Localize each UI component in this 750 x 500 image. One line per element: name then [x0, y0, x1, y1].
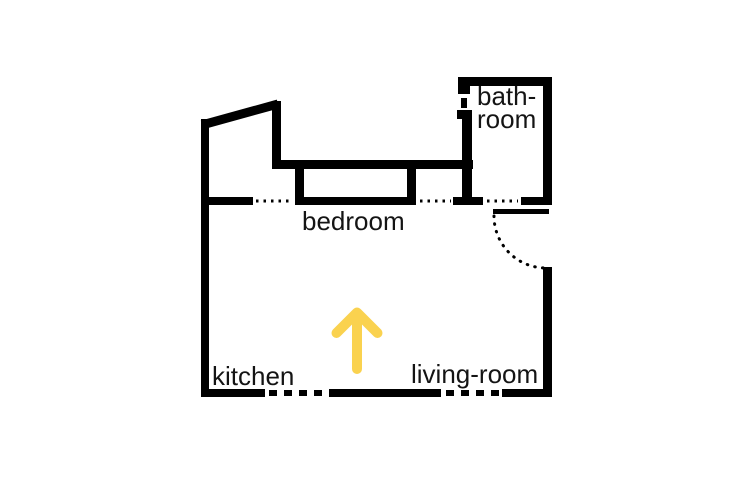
entry-door-leaf: [493, 209, 549, 214]
wall-top-angled-right-side: [272, 101, 281, 167]
floor-plan-canvas: [0, 0, 750, 500]
living-room-label: living-room: [411, 359, 538, 389]
bathroom-door-stub: [458, 82, 470, 94]
walls-stroked: [202, 104, 546, 393]
kitchen-label: kitchen: [212, 361, 294, 391]
bathroom-label-line2: room: [477, 108, 536, 131]
wall-exterior-right-lower: [543, 267, 552, 397]
entry-door-swing-arc: [494, 216, 546, 268]
wall-exterior-bottom-right: [502, 389, 552, 397]
bathroom-door-dash: [461, 98, 467, 108]
wall-exterior-bottom-middle: [329, 389, 441, 397]
up-arrow-icon: [337, 313, 378, 370]
wall-top-diagonal: [202, 104, 278, 125]
bedroom-alcove-wall-bottom: [295, 197, 416, 205]
wall-bedroom-bottom-left-segment: [201, 197, 253, 205]
bathroom-label: bath- room: [477, 85, 536, 131]
bedroom-label: bedroom: [302, 206, 405, 236]
wall-bathroom-left-jamb: [457, 110, 472, 119]
wall-bathroom-left-lower: [462, 110, 472, 200]
wall-exterior-right-upper: [543, 77, 552, 205]
wall-exterior-left: [201, 119, 209, 397]
floor-plan-screen: bedroom kitchen living-room bath- room: [0, 0, 750, 500]
